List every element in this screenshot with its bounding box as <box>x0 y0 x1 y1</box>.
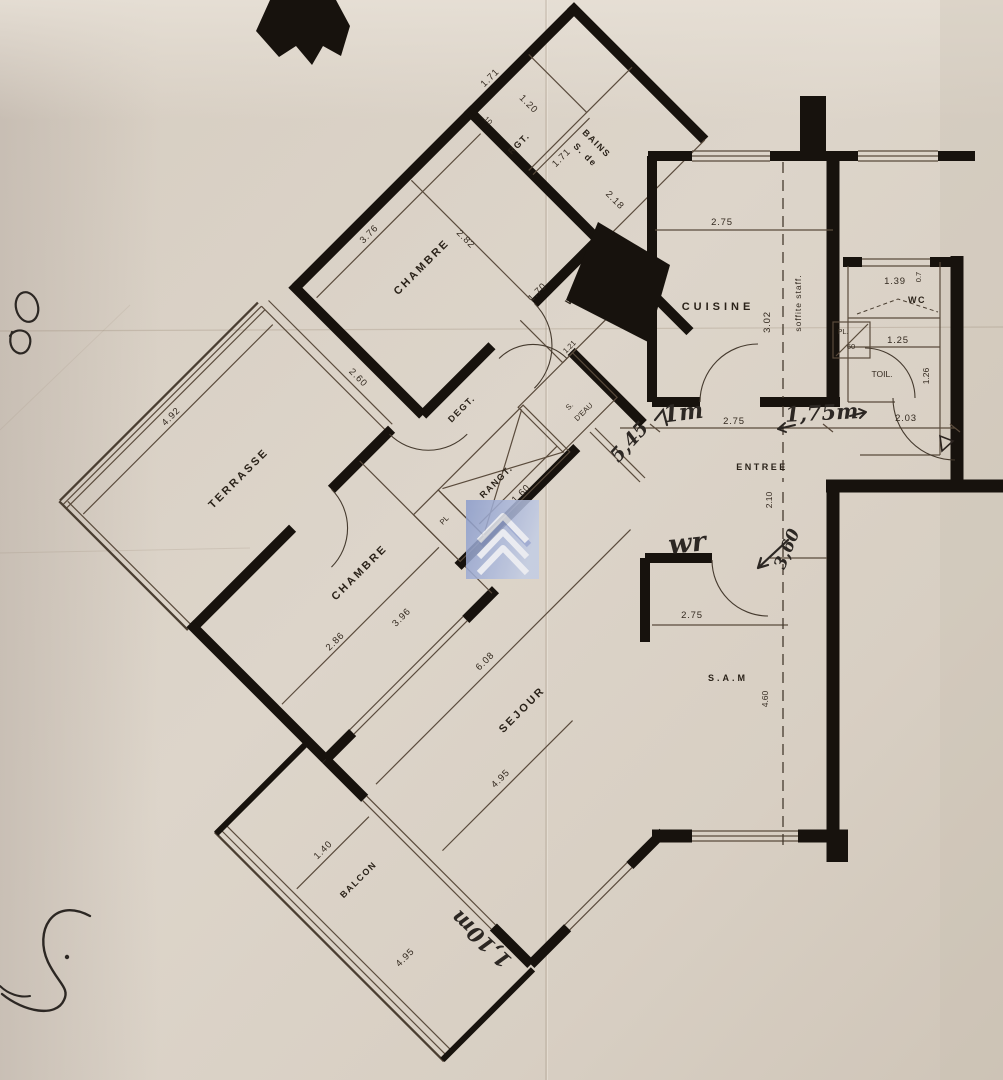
wall-stub-2 <box>832 836 848 862</box>
dim-cuisine-d: 3.02 <box>762 311 773 333</box>
dim-sam-d: 4.60 <box>760 690 770 707</box>
dim-cuisine-w: 2.75 <box>711 217 733 228</box>
dim-toil-w: 1.25 <box>887 335 909 346</box>
label-soffite: soffite staff. <box>793 274 803 331</box>
room-label-toil: TOIL. <box>871 369 892 379</box>
dim-pl2: 60 <box>847 342 855 351</box>
room-label-sam: S.A.M <box>708 673 748 683</box>
handwritten-note-wr: wr <box>667 526 709 561</box>
dim-toil-d: 1.26 <box>921 367 931 384</box>
room-label-entree: ENTREE <box>736 462 788 472</box>
dim-entree-r: 2.03 <box>895 413 917 424</box>
scanned-floor-plan: TERRASSE 4.92 2.60 CHAMBRE 3.76 2.82 RGT… <box>0 0 1003 1080</box>
wall-stub <box>800 96 826 160</box>
dim-wc2-w: 1.39 <box>884 276 906 287</box>
room-label-pl2: PL. <box>837 327 848 336</box>
room-label-wc-right: WC <box>908 295 926 305</box>
dim-wc2-s: 0.7 <box>914 272 923 282</box>
handwritten-note-1m: 1m <box>661 397 704 429</box>
dim-sam-w: 2.75 <box>681 610 703 621</box>
handwritten-note-175m: 1,75m <box>784 398 859 427</box>
dim-entree-d: 2.10 <box>764 491 774 508</box>
dim-entree-l: 2.75 <box>723 416 745 427</box>
room-label-cuisine: CUISINE <box>682 301 755 313</box>
watermark-logo <box>466 500 539 579</box>
floor-plan-canvas: TERRASSE 4.92 2.60 CHAMBRE 3.76 2.82 RGT… <box>0 0 1003 1080</box>
